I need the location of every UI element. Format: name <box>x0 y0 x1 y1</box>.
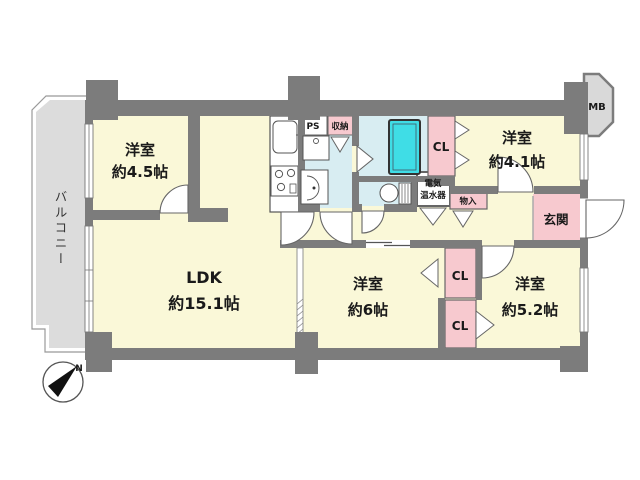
room45-size: 約4.5帖 <box>112 163 169 181</box>
room52-size: 約5.2帖 <box>502 301 559 319</box>
ldk-size: 約15.1帖 <box>168 294 239 313</box>
pillar <box>288 76 320 120</box>
wall-wash-bath <box>352 116 359 146</box>
wall-hall-south <box>410 240 482 248</box>
closet-mid-label: CL <box>452 269 469 283</box>
entrance-label: 玄関 <box>543 212 568 227</box>
wall-toilet-right <box>411 178 417 208</box>
wall-hall-south <box>514 240 580 248</box>
floor-plan-canvas: バルコニー <box>0 0 640 480</box>
floor-plan-svg: バルコニー <box>0 0 640 480</box>
wall-room45-bottom <box>93 210 160 220</box>
wall-hall-north <box>298 204 320 212</box>
pipe-space-label: PS <box>306 122 319 132</box>
shuno-label: 収納 <box>331 121 348 132</box>
wall-room41-bottom <box>450 186 498 194</box>
compass-north-label: N <box>75 364 83 374</box>
pillar <box>564 82 588 134</box>
compass: N <box>43 362 83 402</box>
bathtub-icon <box>389 120 420 174</box>
closet-bottom-label: CL <box>452 319 469 333</box>
sliding-door <box>366 240 410 248</box>
pillar <box>86 332 112 372</box>
closet-top-label: CL <box>433 140 450 154</box>
wall-hall-north <box>384 204 417 212</box>
wall-top <box>85 100 588 116</box>
ldk-name: LDK <box>186 268 222 287</box>
room6-size: 約6帖 <box>348 301 388 319</box>
pillar <box>86 80 118 120</box>
kitchen-sink-icon <box>273 121 297 153</box>
toilet-bowl-icon <box>380 184 398 202</box>
wall-hall-north <box>352 204 362 212</box>
balcony: バルコニー <box>32 96 88 352</box>
meter-box-label: MB <box>588 102 606 113</box>
pillar <box>560 346 588 372</box>
room45-name: 洋室 <box>125 141 155 159</box>
room41-size: 約4.1帖 <box>489 153 546 171</box>
wall-closet-col-left <box>438 298 445 348</box>
sliding-door-gap <box>366 240 410 248</box>
wall-bottom <box>85 348 588 360</box>
room6-name: 洋室 <box>353 275 383 293</box>
pillar <box>295 332 318 374</box>
washing-machine-pan-icon <box>303 136 329 160</box>
wall-stub <box>188 208 228 222</box>
wall-bath-bottom <box>357 176 428 182</box>
water-heater-label-1: 電気 <box>424 178 442 189</box>
basin-tap-icon <box>313 187 316 190</box>
room41-name: 洋室 <box>502 129 532 147</box>
balcony-label: バルコニー <box>53 190 68 268</box>
room52-name: 洋室 <box>515 275 545 293</box>
wall-room45-right <box>188 116 200 208</box>
monoire-label: 物入 <box>459 196 477 207</box>
wall-right <box>580 238 588 268</box>
wall-closet-col-right <box>476 248 482 300</box>
wall-room41-bottom <box>534 186 580 194</box>
wall-right <box>580 180 588 198</box>
water-heater-label-2: 温水器 <box>420 190 446 201</box>
kitchen-counter <box>270 116 300 212</box>
